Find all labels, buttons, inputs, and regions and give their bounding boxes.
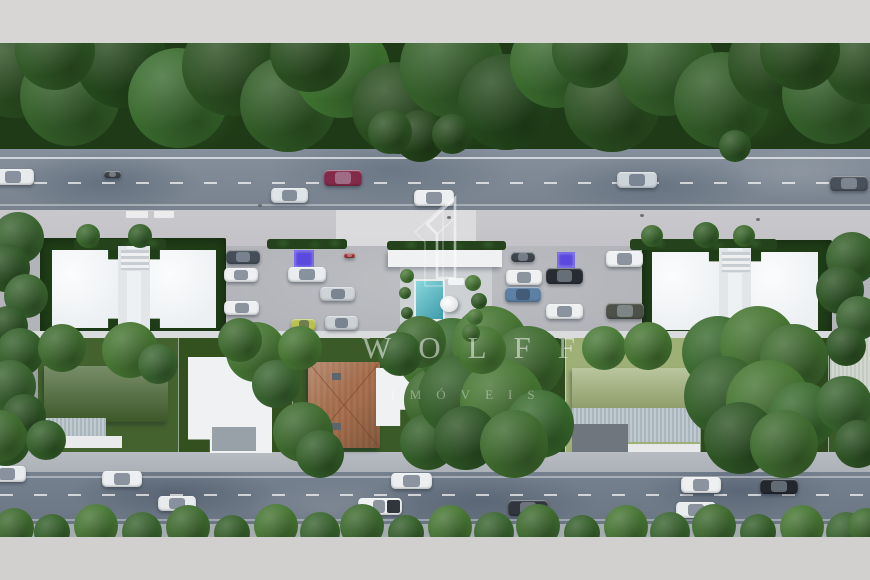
tree <box>834 420 870 468</box>
tree <box>296 430 344 478</box>
tree <box>693 222 719 248</box>
vegetation-layer <box>0 0 870 580</box>
tree <box>378 332 422 376</box>
tree <box>218 318 262 362</box>
tree <box>467 309 483 325</box>
tree <box>38 324 86 372</box>
tree <box>26 420 66 460</box>
tree <box>399 287 411 299</box>
tree <box>624 322 672 370</box>
letterbox-bar-bottom <box>0 537 870 580</box>
tree <box>826 326 866 366</box>
tree <box>480 410 548 478</box>
tree <box>465 275 481 291</box>
tree <box>400 269 414 283</box>
tree <box>462 324 480 342</box>
tree <box>471 293 487 309</box>
tree <box>641 225 663 247</box>
tree <box>719 130 751 162</box>
letterbox-bar-top <box>0 0 870 43</box>
tree <box>128 224 152 248</box>
tree <box>750 410 818 478</box>
tree <box>733 225 755 247</box>
tree <box>138 344 178 384</box>
tree <box>368 110 412 154</box>
tree <box>432 114 472 154</box>
aerial-site-render: WOLFF IMÓVEIS <box>0 0 870 580</box>
tree <box>278 326 322 370</box>
tree <box>582 326 626 370</box>
tree <box>401 307 413 319</box>
tree <box>76 224 100 248</box>
